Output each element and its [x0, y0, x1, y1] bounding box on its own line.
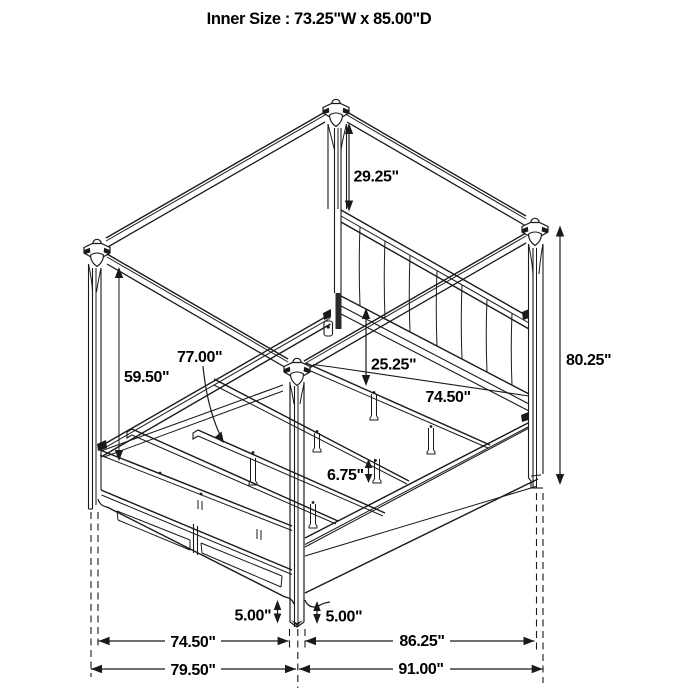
svg-text:5.00": 5.00": [326, 609, 363, 626]
svg-text:80.25": 80.25": [566, 352, 611, 369]
svg-text:5.00": 5.00": [235, 608, 272, 625]
svg-text:86.25": 86.25": [399, 633, 444, 650]
svg-text:29.25": 29.25": [354, 169, 399, 186]
svg-text:77.00": 77.00": [177, 349, 222, 366]
svg-text:74.50": 74.50": [170, 634, 215, 651]
svg-text:74.50": 74.50": [426, 389, 471, 406]
svg-text:91.00": 91.00": [398, 661, 443, 678]
svg-text:25.25": 25.25": [371, 357, 416, 374]
svg-text:79.50": 79.50": [170, 662, 215, 679]
svg-text:6.75": 6.75": [327, 467, 364, 484]
svg-text:Inner Size : 73.25"W x 85.00"D: Inner Size : 73.25"W x 85.00"D: [207, 10, 432, 28]
svg-text:59.50": 59.50": [124, 369, 169, 386]
